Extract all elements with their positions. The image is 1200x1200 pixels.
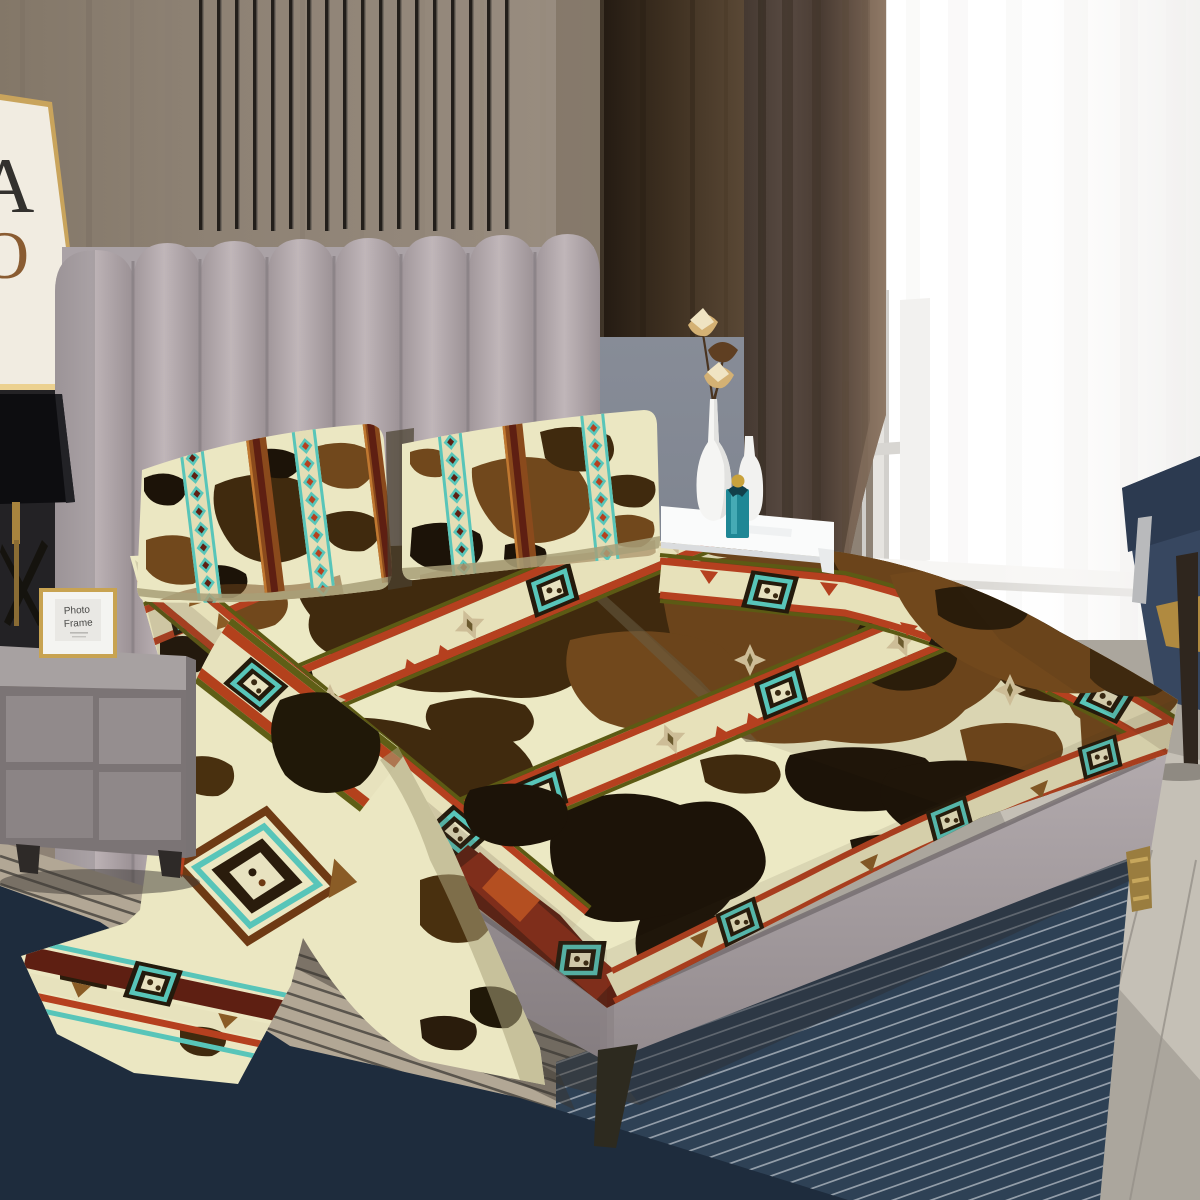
svg-text:Photo: Photo: [64, 605, 91, 617]
svg-text:A: A: [0, 142, 34, 229]
svg-text:O: O: [0, 217, 29, 293]
svg-text:Frame: Frame: [64, 617, 94, 630]
